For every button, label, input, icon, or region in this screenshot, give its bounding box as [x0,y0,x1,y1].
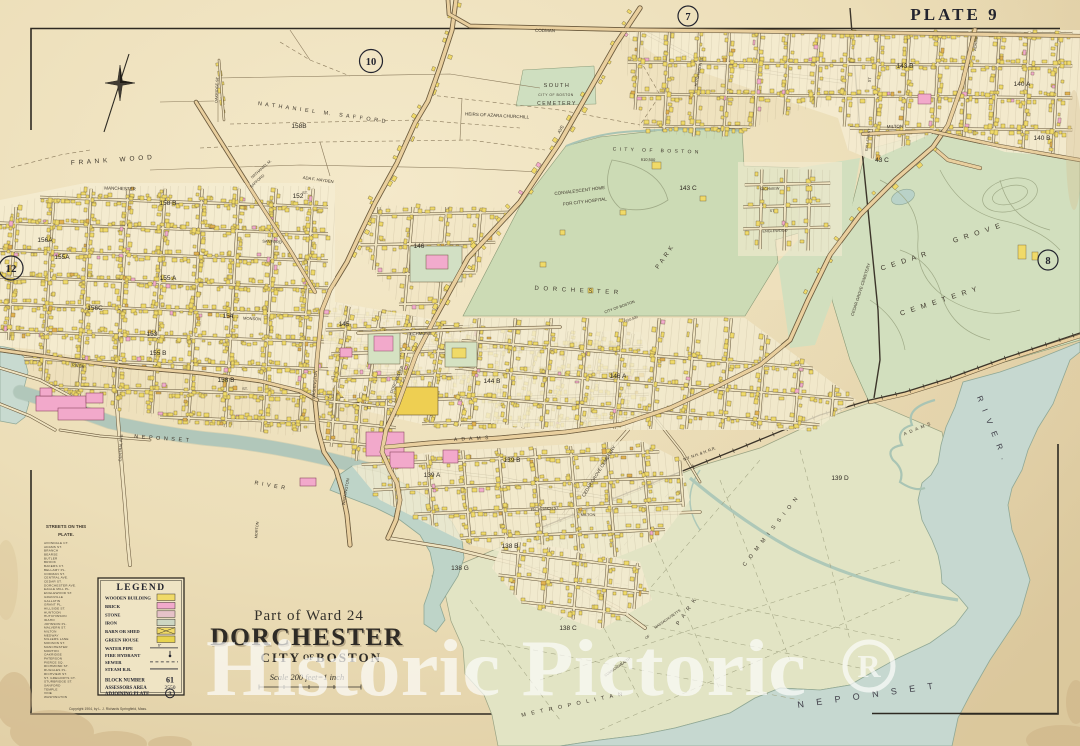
svg-text:Historic Pictoric: Historic Pictoric [206,625,806,713]
svg-text:ADJOINING PLATE: ADJOINING PLATE [105,692,149,697]
svg-text:BRICK: BRICK [105,604,120,609]
svg-text:Copyright 1904, by L. J. Richa: Copyright 1904, by L. J. Richards Spring… [69,707,147,711]
svg-text:155 A: 155 A [160,275,177,282]
svg-text:IRON: IRON [105,621,118,626]
svg-text:R: R [857,648,881,684]
svg-text:MONSON: MONSON [243,316,261,322]
svg-text:158 B: 158 B [160,200,177,207]
svg-text:STONE: STONE [105,612,121,617]
svg-text:158 B: 158 B [218,377,235,384]
svg-text:139 A: 139 A [424,472,441,479]
svg-text:GREEN HOUSE: GREEN HOUSE [105,638,139,643]
svg-text:MILTON: MILTON [887,124,904,130]
svg-text:WASHINGTON: WASHINGTON [44,695,67,699]
svg-text:RICHMOND: RICHMOND [408,331,431,337]
svg-text:PLATE.: PLATE. [58,532,74,537]
svg-text:BLOCK NUMBER: BLOCK NUMBER [105,678,145,683]
svg-text:STREETS ON THIS: STREETS ON THIS [46,524,86,529]
svg-text:139 B: 139 B [504,457,521,464]
svg-text:WATER PIPE: WATER PIPE [105,646,133,651]
svg-text:143 B: 143 B [897,63,914,70]
svg-text:SANFORD: SANFORD [262,238,282,244]
svg-text:145: 145 [339,321,350,328]
svg-text:STEAM R.R.: STEAM R.R. [105,667,131,672]
svg-text:BARN OR SHED: BARN OR SHED [105,629,140,634]
svg-text:PLATE 9: PLATE 9 [910,5,999,24]
svg-text:8: 8 [1045,256,1050,267]
svg-text:138 G: 138 G [451,565,469,572]
svg-text:CODMAN: CODMAN [535,28,555,33]
svg-text:139 D: 139 D [831,475,849,482]
svg-text:LEGEND: LEGEND [116,583,165,593]
svg-text:140 A: 140 A [1014,81,1031,88]
svg-text:155 B: 155 B [150,350,167,357]
svg-text:156C: 156C [87,305,103,312]
svg-text:154: 154 [223,313,234,320]
svg-text:146 A: 146 A [610,373,627,380]
svg-text:144 B: 144 B [484,378,501,385]
svg-text:158B: 158B [291,123,306,130]
svg-text:12: 12 [6,263,18,275]
svg-text:140 B: 140 B [1034,135,1051,142]
svg-text:610,500: 610,500 [641,157,656,163]
svg-text:WOODEN BUILDING: WOODEN BUILDING [105,596,151,601]
svg-text:FIRE HYDRANT: FIRE HYDRANT [105,653,140,658]
svg-text:156A: 156A [37,237,53,244]
svg-text:RICHVIEW: RICHVIEW [760,187,780,192]
svg-text:SEWER: SEWER [105,660,122,665]
svg-text:10: 10 [366,57,377,68]
svg-text:146: 146 [414,243,425,250]
svg-text:153: 153 [147,331,158,338]
svg-text:143 C: 143 C [679,185,697,192]
svg-text:MILTON: MILTON [581,512,596,517]
svg-text:138 B: 138 B [502,543,519,550]
svg-text:CITY OF BOSTON: CITY OF BOSTON [538,93,574,97]
svg-text:7: 7 [685,12,690,23]
svg-text:61: 61 [166,675,174,684]
svg-text:ASSESSORS AREA: ASSESSORS AREA [105,686,147,691]
svg-text:ST.: ST. [242,386,248,391]
svg-text:155A: 155A [54,254,70,261]
svg-text:SOUTH: SOUTH [544,83,571,89]
svg-text:CEMETERY: CEMETERY [537,101,577,107]
svg-text:43 C: 43 C [875,157,889,164]
svg-text:152: 152 [293,193,304,200]
